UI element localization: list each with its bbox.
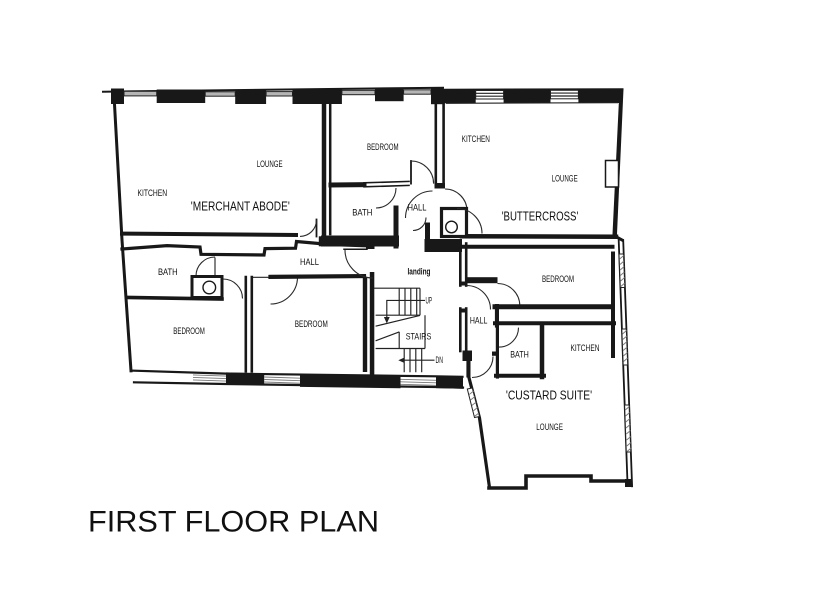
svg-text:'CUSTARD SUITE': 'CUSTARD SUITE' [506, 388, 592, 403]
svg-text:HALL: HALL [408, 203, 427, 213]
svg-text:BATH: BATH [510, 349, 529, 359]
svg-text:KITCHEN: KITCHEN [462, 134, 490, 144]
svg-text:'MERCHANT ABODE': 'MERCHANT ABODE' [191, 199, 290, 214]
svg-text:STAIRS: STAIRS [406, 331, 432, 341]
svg-text:DN: DN [436, 355, 444, 365]
svg-text:HALL: HALL [300, 257, 319, 267]
svg-text:BATH: BATH [158, 267, 178, 277]
svg-text:LOUNGE: LOUNGE [552, 174, 578, 184]
svg-text:landing: landing [408, 267, 431, 277]
svg-text:BEDROOM: BEDROOM [367, 142, 399, 152]
svg-text:FIRST FLOOR PLAN: FIRST FLOOR PLAN [88, 506, 379, 539]
svg-text:LOUNGE: LOUNGE [536, 422, 563, 432]
svg-text:'BUTTERCROSS': 'BUTTERCROSS' [502, 209, 579, 224]
svg-text:BEDROOM: BEDROOM [295, 319, 328, 329]
svg-text:KITCHEN: KITCHEN [137, 188, 167, 198]
svg-text:KITCHEN: KITCHEN [571, 343, 600, 353]
svg-text:BATH: BATH [352, 208, 372, 218]
svg-text:UP: UP [426, 295, 433, 305]
svg-text:BEDROOM: BEDROOM [173, 326, 205, 336]
svg-text:BEDROOM: BEDROOM [542, 274, 574, 284]
svg-text:HALL: HALL [470, 316, 488, 326]
svg-text:LOUNGE: LOUNGE [257, 159, 283, 169]
